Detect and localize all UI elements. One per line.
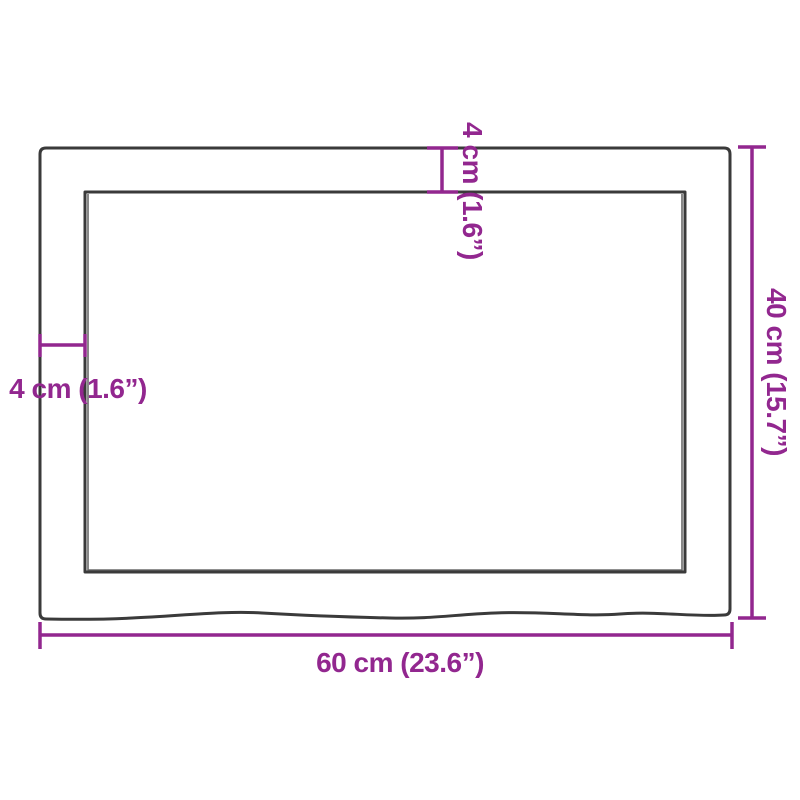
panel-inner-edge [85,192,685,572]
thickness-left-dimension-line [40,334,85,357]
panel-inner-bevel [88,194,682,570]
thickness-left-label: 4 cm (1.6”) [9,373,147,404]
width-label: 60 cm (23.6”) [316,647,484,678]
width-dimension-line [40,622,732,649]
thickness-top-dimension-line [427,148,458,192]
thickness-top-label: 4 cm (1.6”) [457,122,488,260]
height-label: 40 cm (15.7”) [761,288,792,456]
diagram-canvas: 4 cm (1.6”) 4 cm (1.6”) 40 cm (15.7”) 60… [0,0,800,800]
dimension-diagram: 4 cm (1.6”) 4 cm (1.6”) 40 cm (15.7”) 60… [0,0,800,800]
